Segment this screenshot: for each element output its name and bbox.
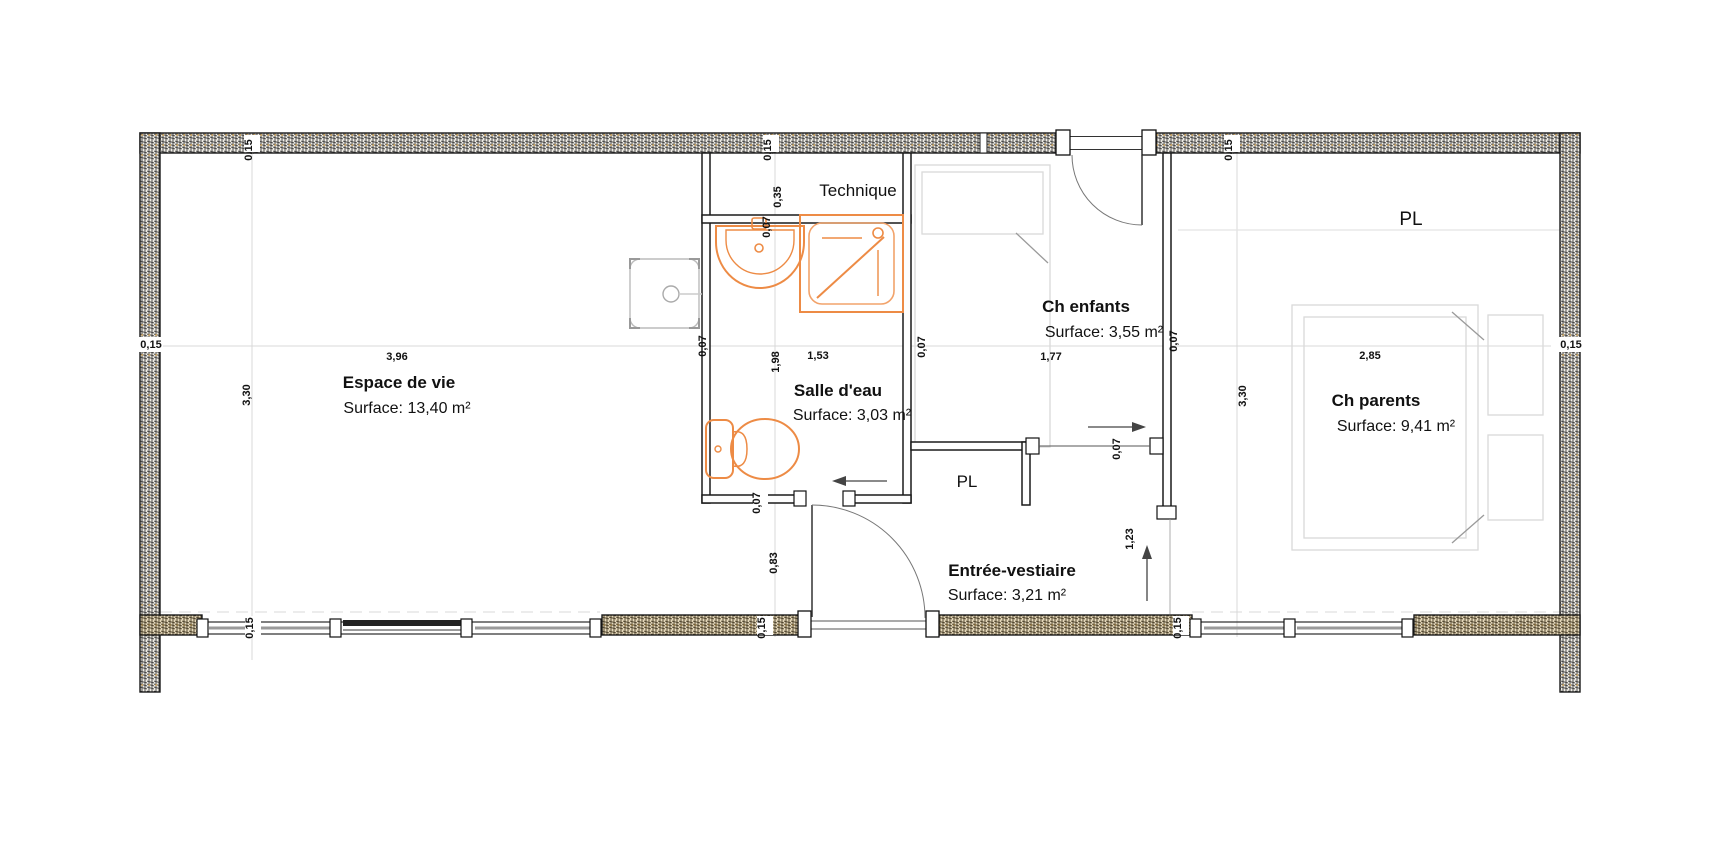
- dim-035: 0,35: [772, 186, 784, 207]
- wall-closet-top: [911, 442, 1030, 450]
- dim-007-passage: 0,07: [1111, 438, 1123, 459]
- room-label-espace-de-vie: Espace de vie: [343, 373, 455, 392]
- dim-015-right: 0,15: [1560, 339, 1581, 351]
- room-label-technique: Technique: [819, 181, 897, 200]
- passage-frame: [1150, 438, 1163, 454]
- room-label-ch-enfants: Ch enfants: [1042, 297, 1130, 316]
- window-frame-7: [1402, 619, 1413, 637]
- wall-bathroom-bottom-right: [851, 495, 911, 503]
- dim-007-wall2: 0,07: [916, 336, 928, 357]
- window-frame-6: [1284, 619, 1295, 637]
- wall-bottom-segment-4: [1414, 615, 1580, 635]
- dim-007-technique: 0,07: [761, 216, 773, 237]
- sliding-panel-leaf: [343, 620, 463, 626]
- dim-330-right: 3,30: [1237, 385, 1249, 406]
- dim-198: 1,98: [770, 351, 782, 372]
- closet-label-parents: PL: [1399, 209, 1422, 230]
- room-surface-ch-parents: Surface: 9,41 m²: [1337, 418, 1456, 435]
- dim-015-left: 0,15: [140, 339, 161, 351]
- room-label-ch-parents: Ch parents: [1332, 391, 1421, 410]
- wall-bathroom-childroom: [903, 153, 911, 503]
- child-door-frame-left: [1056, 130, 1070, 155]
- dim-177: 1,77: [1040, 351, 1061, 363]
- window-frame-2: [330, 619, 341, 637]
- dim-123: 1,23: [1124, 528, 1136, 549]
- floor-plan-page: 0,15 0,15 0,15 0,15 0,15 0,15 0,15 0,15 …: [0, 0, 1711, 842]
- entrance-door-frame-left: [798, 611, 811, 637]
- dim-007-bathroom-wall: 0,07: [751, 492, 763, 513]
- bathroom-door-frame-right: [843, 491, 855, 506]
- bathroom-door-frame-left: [794, 491, 806, 506]
- window-frame-5: [1190, 619, 1201, 637]
- dim-015-bottom-1: 0,15: [244, 617, 256, 638]
- room-surface-ch-enfants: Surface: 3,55 m²: [1045, 324, 1164, 341]
- room-label-entree-vestiaire: Entrée-vestiaire: [948, 561, 1076, 580]
- dim-015-top-3: 0,15: [1223, 139, 1235, 160]
- wall-bottom-segment-2: [602, 615, 810, 635]
- dim-330-left: 3,30: [241, 384, 253, 405]
- dim-015-top-2: 0,15: [762, 139, 774, 160]
- dim-007-wall3: 0,07: [1168, 330, 1180, 351]
- wall-panel-joint: [980, 133, 987, 153]
- dim-153: 1,53: [807, 350, 828, 362]
- dim-015-bottom-2: 0,15: [756, 617, 768, 638]
- room-label-salle-deau: Salle d'eau: [794, 381, 882, 400]
- wall-bottom-segment-3: [928, 615, 1192, 635]
- room-surface-salle-deau: Surface: 3,03 m²: [793, 407, 912, 424]
- room-surface-espace-de-vie: Surface: 13,40 m²: [343, 400, 471, 417]
- wall-technique-bottom: [702, 215, 911, 223]
- wall-top-right-segment: [1156, 133, 1580, 153]
- dim-007-wall1: 0,07: [697, 335, 709, 356]
- wall-bottom-segment-1: [140, 615, 202, 635]
- closet-label-entree: PL: [957, 472, 978, 491]
- dim-285: 2,85: [1359, 350, 1380, 362]
- room-surface-entree-vestiaire: Surface: 3,21 m²: [948, 587, 1067, 604]
- parents-wall-end-frame: [1157, 506, 1176, 519]
- wall-bathroom-bottom-left: [702, 495, 798, 503]
- window-frame-3: [461, 619, 472, 637]
- entrance-door-frame-right: [926, 611, 939, 637]
- wall-left: [140, 133, 160, 692]
- dim-015-bottom-3: 0,15: [1172, 617, 1184, 638]
- wall-top-left-segment: [140, 133, 1058, 153]
- closet-wall-end-frame: [1026, 438, 1039, 454]
- window-frame-4: [590, 619, 601, 637]
- child-door-frame-right: [1142, 130, 1156, 155]
- floor-plan-drawing: 0,15 0,15 0,15 0,15 0,15 0,15 0,15 0,15 …: [0, 0, 1711, 842]
- window-frame-1: [197, 619, 208, 637]
- dim-015-top-1: 0,15: [243, 139, 255, 160]
- dim-083: 0,83: [768, 552, 780, 573]
- dim-396: 3,96: [386, 351, 407, 363]
- wall-right: [1560, 133, 1580, 692]
